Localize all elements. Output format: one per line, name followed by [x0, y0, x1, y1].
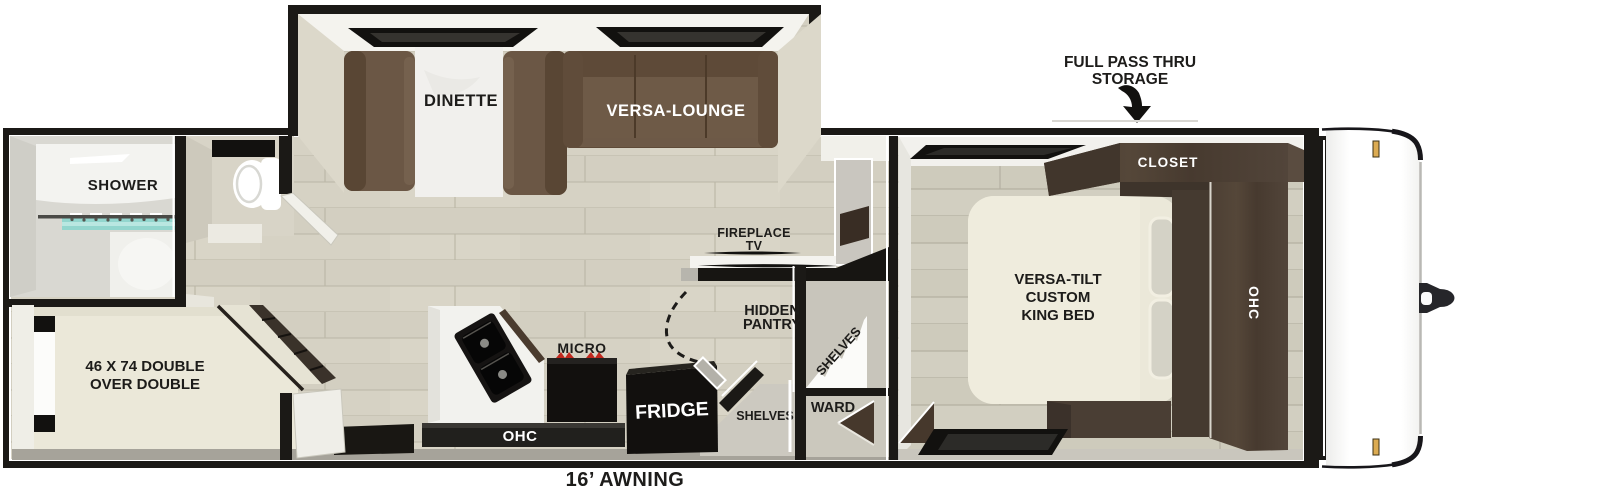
- svg-text:KING BED: KING BED: [1021, 307, 1095, 324]
- svg-text:STORAGE: STORAGE: [1092, 71, 1168, 88]
- svg-text:FIREPLACE: FIREPLACE: [717, 226, 791, 240]
- svg-text:FRIDGE: FRIDGE: [635, 398, 710, 424]
- svg-text:FULL PASS THRU: FULL PASS THRU: [1064, 54, 1196, 71]
- svg-text:PANTRY: PANTRY: [743, 317, 801, 333]
- svg-text:TV: TV: [746, 239, 763, 253]
- svg-text:46 X 74 DOUBLE: 46 X 74 DOUBLE: [85, 358, 204, 375]
- svg-text:DINETTE: DINETTE: [424, 92, 498, 110]
- svg-text:SHOWER: SHOWER: [88, 177, 159, 194]
- svg-text:16’ AWNING: 16’ AWNING: [566, 469, 685, 488]
- svg-text:CLOSET: CLOSET: [1138, 155, 1199, 170]
- svg-text:CUSTOM: CUSTOM: [1026, 289, 1091, 306]
- svg-text:VERSA-TILT: VERSA-TILT: [1014, 271, 1101, 288]
- svg-text:VERSA-LOUNGE: VERSA-LOUNGE: [607, 102, 746, 120]
- svg-text:WARD: WARD: [811, 400, 855, 416]
- svg-text:SHELVES: SHELVES: [736, 409, 793, 423]
- svg-text:OHC: OHC: [1246, 286, 1262, 320]
- svg-text:OVER DOUBLE: OVER DOUBLE: [90, 376, 200, 393]
- svg-text:OHC: OHC: [503, 428, 538, 445]
